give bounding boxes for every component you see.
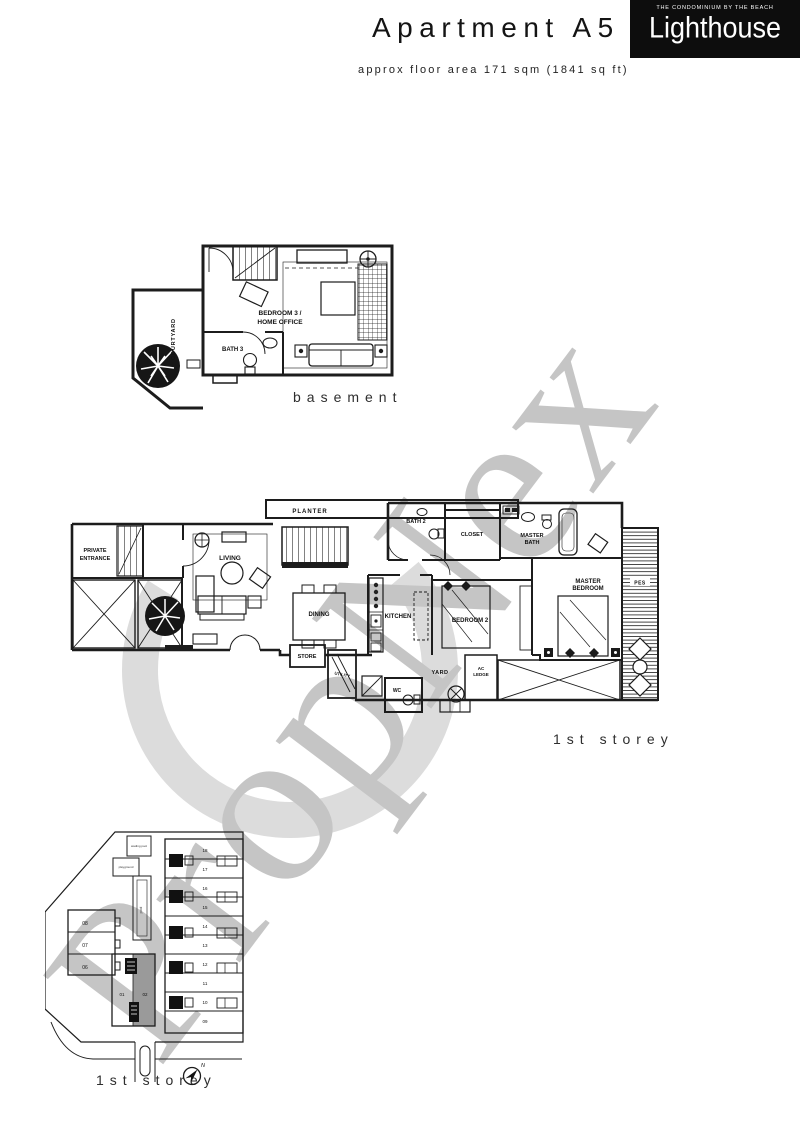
room-label-masterbedroom-1: MASTER (575, 579, 601, 585)
amenity-label-playground: playground (119, 865, 134, 869)
storey1-tree-icon (145, 596, 185, 636)
logo-tagline: THE CONDOMINIUM BY THE BEACH (656, 5, 773, 11)
bedroom2: BEDROOM 2 (430, 555, 532, 650)
unit-label-18: 18 (202, 848, 208, 853)
room-label-kitchen: KITCHEN (385, 614, 412, 620)
first-storey-plan: PLANTER PRIVATE ENTRANCE (70, 492, 662, 722)
site-court-block: 01 02 (112, 954, 155, 1026)
north-label: N (201, 1063, 205, 1069)
room-label-bath2: BATH 2 (406, 519, 425, 525)
bath2: BATH 2 (388, 509, 444, 561)
unit-label-09: 09 (202, 1019, 208, 1024)
pes-terrace: PES (622, 528, 658, 700)
room-label-bedroom2: BEDROOM 2 (452, 618, 489, 624)
floorplan-page: PropNex Apartment A5 THE CONDOMINIUM BY … (0, 0, 800, 1121)
room-label-private-1: PRIVATE (83, 548, 106, 554)
kitchen: KITCHEN (369, 578, 428, 652)
master-bath: MASTER BATH (503, 506, 577, 555)
unit-label-12: 12 (202, 962, 208, 967)
unit-label-17: 17 (202, 867, 208, 872)
master-bedroom: MASTER BEDROOM (544, 534, 620, 658)
unit-label-08: 08 (82, 921, 88, 927)
living-room: LIVING (183, 532, 271, 650)
lighthouse-logo: THE CONDOMINIUM BY THE BEACH Lighthouse (630, 0, 800, 58)
room-label-closet: CLOSET (461, 532, 484, 538)
room-label-courtyard: COURTYARD (171, 318, 177, 360)
unit-label-15: 15 (202, 905, 208, 910)
room-label-pes: PES (634, 581, 646, 587)
room-label-bath3: BATH 3 (222, 347, 244, 353)
unit-label-13: 13 (202, 943, 208, 948)
room-label-masterbath-1: MASTER (520, 533, 543, 539)
logo-name: Lighthouse (649, 12, 781, 45)
site-amenities: wading pool playground pool (113, 836, 151, 940)
room-label-planter: PLANTER (292, 509, 327, 515)
room-label-acledge-1: AC (478, 666, 485, 671)
room-label-yard: YARD (431, 670, 448, 676)
basement-plan: COURTYARD BEDROOM 3 / HOME OFFICE BATH 3 (125, 238, 400, 430)
unit-label-11: 11 (203, 981, 208, 986)
dining-area: DINING (293, 585, 345, 648)
room-label-bedroom3-1: BEDROOM 3 / (259, 310, 302, 317)
storey1-stairs (282, 527, 348, 568)
unit-label-01: 01 (119, 992, 125, 997)
first-storey-caption: 1st storey (553, 731, 674, 747)
room-label-living: LIVING (219, 555, 241, 562)
room-label-store: STORE (298, 654, 317, 660)
room-label-private-2: ENTRANCE (80, 556, 111, 562)
floor-area-subtitle: approx floor area 171 sqm (1841 sq ft) (358, 64, 629, 76)
room-label-masterbedroom-2: BEDROOM (572, 586, 603, 592)
room-label-wc: WC (393, 688, 402, 694)
bath3-fixtures (243, 332, 277, 374)
site-right-block: 18 17 16 15 14 13 12 11 10 09 (165, 839, 243, 1033)
room-label-masterbath-2: BATH (525, 540, 540, 546)
room-label-dining: DINING (309, 612, 330, 618)
amenity-label-pool: pool (139, 906, 143, 913)
unit-label-10: 10 (202, 1000, 208, 1005)
unit-label-16: 16 (202, 886, 208, 891)
room-label-bedroom3-2: HOME OFFICE (257, 319, 303, 326)
amenity-label-wading-pool: wading pool (131, 844, 147, 848)
page-title: Apartment A5 (372, 12, 620, 44)
unit-label-06: 06 (82, 965, 88, 971)
north-arrow-icon: N (184, 1063, 206, 1085)
basement-stairs (233, 246, 277, 280)
site-plan: 08 07 06 wading pool playground pool 01 … (45, 826, 295, 1090)
unit-label-07: 07 (82, 943, 88, 949)
private-entrance: PRIVATE ENTRANCE (80, 526, 143, 576)
unit-label-14: 14 (202, 924, 208, 929)
room-label-acledge-2: LEDGE (473, 672, 489, 677)
unit-label-02: 02 (142, 992, 148, 997)
